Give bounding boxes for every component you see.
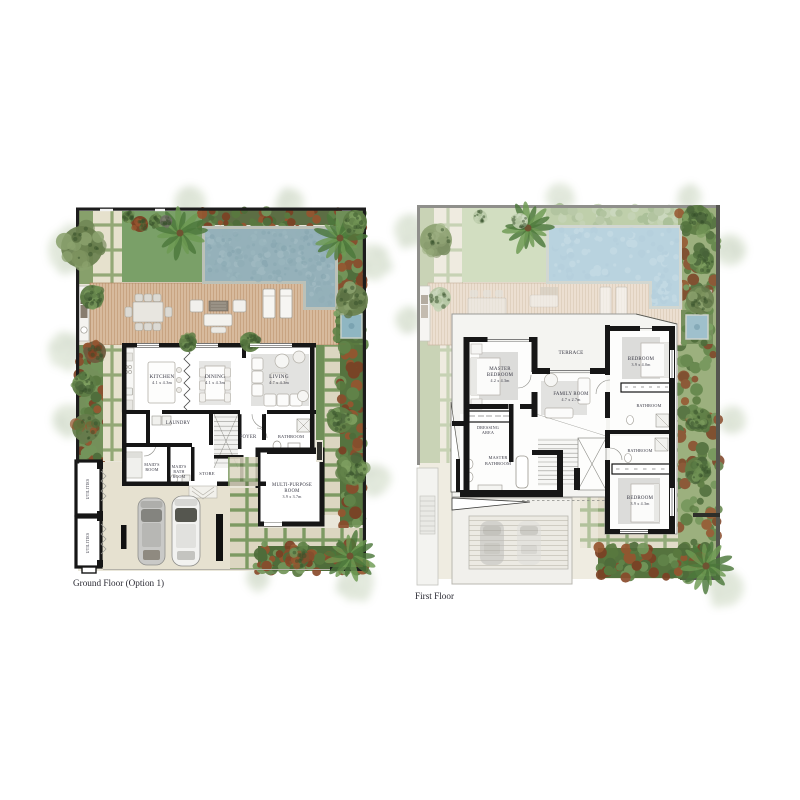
svg-text:3.9 x 4.3m: 3.9 x 4.3m [630,501,650,506]
svg-text:4.7 x 4.3m: 4.7 x 4.3m [269,380,289,385]
svg-text:4.7 x 2.7m: 4.7 x 2.7m [561,397,581,402]
svg-text:4.1 x 4.3m: 4.1 x 4.3m [152,380,172,385]
svg-text:First Floor: First Floor [415,591,454,601]
svg-text:ROOM: ROOM [145,467,158,472]
svg-text:TERRACE: TERRACE [558,350,583,356]
svg-text:MULTI-PURPOSE: MULTI-PURPOSE [272,483,312,488]
svg-text:UTILITIES: UTILITIES [85,533,90,554]
svg-text:AREA: AREA [482,430,494,435]
svg-text:UTILITIES: UTILITIES [85,479,90,500]
svg-text:4.1 x 4.3m: 4.1 x 4.3m [205,380,225,385]
svg-text:BATHROOM: BATHROOM [636,403,661,408]
svg-text:BATHROOM: BATHROOM [485,461,511,466]
svg-text:BATHROOM: BATHROOM [278,434,304,439]
svg-text:ROOM: ROOM [173,474,186,479]
svg-text:4.2 x 4.3m: 4.2 x 4.3m [490,378,510,383]
svg-text:STORE: STORE [199,471,214,476]
svg-text:LAUNDRY: LAUNDRY [166,421,191,426]
svg-text:3.9 x 4.0m: 3.9 x 4.0m [631,362,651,367]
svg-text:BATHROOM: BATHROOM [627,448,652,453]
svg-text:3.9 x 3.7m: 3.9 x 3.7m [282,494,302,499]
svg-text:FOYER: FOYER [240,435,257,440]
svg-text:Ground Floor (Option 1): Ground Floor (Option 1) [73,578,164,588]
svg-text:MASTER: MASTER [488,455,507,460]
svg-text:MASTER: MASTER [489,367,511,372]
